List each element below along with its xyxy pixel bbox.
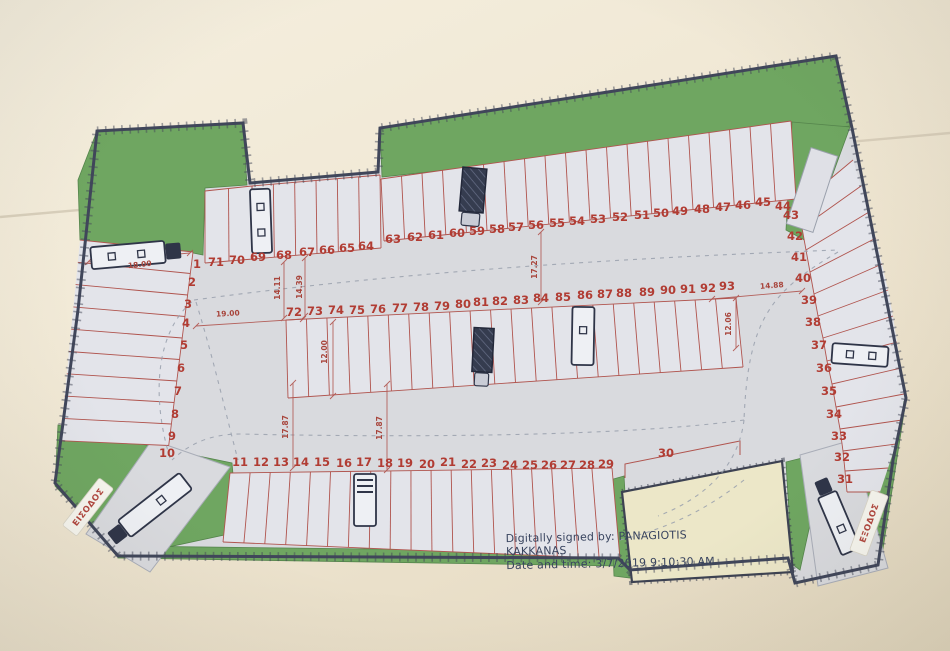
space-number-54: 54 [569,214,585,228]
space-number-35: 35 [821,384,837,398]
space-number-91: 91 [680,282,696,296]
space-number-55: 55 [549,216,565,230]
space-number-69: 69 [250,250,266,264]
space-number-72: 72 [286,305,302,319]
space-number-52: 52 [612,210,628,224]
space-number-47: 47 [715,200,731,214]
dimension-label: 17.87 [281,415,290,439]
space-number-60: 60 [449,226,465,240]
space-number-18: 18 [377,456,393,470]
space-number-23: 23 [481,456,497,470]
space-number-25: 25 [522,458,538,472]
space-number-46: 46 [735,198,751,212]
space-number-26: 26 [541,458,557,472]
space-number-81: 81 [473,295,489,309]
space-number-20: 20 [419,457,435,471]
space-number-64: 64 [358,239,374,253]
space-number-51: 51 [634,208,650,222]
space-number-6: 6 [177,361,185,375]
truck-space-69-icon [250,189,272,254]
space-number-36: 36 [816,361,832,375]
space-number-11: 11 [232,455,248,469]
space-number-45: 45 [755,195,771,209]
digital-signature: Digitally signed by: PANAGIOTIS KAKKANAS… [506,528,715,573]
space-number-67: 67 [299,245,315,259]
space-number-33: 33 [831,429,847,443]
space-number-89: 89 [639,285,655,299]
space-number-43: 43 [783,208,799,222]
space-number-73: 73 [307,304,323,318]
space-number-61: 61 [428,228,444,242]
space-number-30: 30 [658,446,674,460]
space-number-66: 66 [319,243,335,257]
scanned-site-plan-photo: 1717069686766656463626160595857565554535… [0,0,950,651]
site-plan-drawing: 1717069686766656463626160595857565554535… [0,0,950,651]
space-number-84: 84 [533,291,549,305]
space-number-24: 24 [502,458,518,472]
space-number-56: 56 [528,218,544,232]
truck-space-17-icon [354,474,376,526]
space-number-82: 82 [492,294,508,308]
space-number-85: 85 [555,290,571,304]
space-number-16: 16 [336,456,352,470]
space-number-49: 49 [672,204,688,218]
space-number-34: 34 [826,407,842,421]
space-number-10: 10 [159,446,175,460]
space-number-39: 39 [801,293,817,307]
space-number-68: 68 [276,248,292,262]
space-number-8: 8 [171,407,179,421]
space-number-32: 32 [834,450,850,464]
space-number-79: 79 [434,299,450,313]
space-number-57: 57 [508,220,524,234]
truck-space-36-icon [831,343,888,367]
space-number-80: 80 [455,297,471,311]
space-number-9: 9 [168,429,176,443]
space-number-53: 53 [590,212,606,226]
space-number-22: 22 [461,457,477,471]
space-number-2: 2 [188,275,196,289]
space-number-29: 29 [598,457,614,471]
dimension-label: 12.00 [320,340,329,364]
dimension-label: 17.87 [375,416,384,440]
space-number-28: 28 [579,458,595,472]
space-number-86: 86 [577,288,593,302]
space-number-21: 21 [440,455,456,469]
space-number-4: 4 [182,316,190,330]
space-number-27: 27 [560,458,576,472]
space-number-5: 5 [180,338,188,352]
space-number-71: 71 [208,255,224,269]
space-number-50: 50 [653,206,669,220]
space-number-31: 31 [837,472,853,486]
space-number-15: 15 [314,455,330,469]
space-number-37: 37 [811,338,827,352]
space-number-83: 83 [513,293,529,307]
space-number-3: 3 [184,297,192,311]
space-number-93: 93 [719,279,735,293]
space-number-19: 19 [397,456,413,470]
space-number-78: 78 [413,300,429,314]
space-number-38: 38 [805,315,821,329]
space-number-40: 40 [795,271,811,285]
space-number-75: 75 [349,303,365,317]
space-number-59: 59 [469,224,485,238]
space-number-58: 58 [489,222,505,236]
space-number-77: 77 [392,301,408,315]
space-number-41: 41 [791,250,807,264]
space-number-87: 87 [597,287,613,301]
space-number-1: 1 [193,257,201,271]
space-number-62: 62 [407,230,423,244]
dimension-label: 17.27 [530,255,539,279]
dimension-label: 14.88 [760,280,784,291]
space-number-90: 90 [660,283,676,297]
space-number-65: 65 [339,241,355,255]
space-number-42: 42 [787,229,803,243]
space-number-12: 12 [253,455,269,469]
space-number-14: 14 [293,455,309,469]
truck-space-86-icon [571,307,594,365]
dimension-label: 12.06 [724,312,733,336]
space-number-76: 76 [370,302,386,316]
dimension-label: 19.00 [216,308,240,318]
dimension-label: 14.39 [295,275,304,299]
space-number-88: 88 [616,286,632,300]
space-number-17: 17 [356,455,372,469]
space-number-13: 13 [273,455,289,469]
space-number-7: 7 [174,384,182,398]
space-number-74: 74 [328,303,344,317]
space-number-63: 63 [385,232,401,246]
space-number-92: 92 [700,281,716,295]
space-number-48: 48 [694,202,710,216]
space-number-70: 70 [229,253,245,267]
dimension-label: 14.11 [273,276,282,300]
